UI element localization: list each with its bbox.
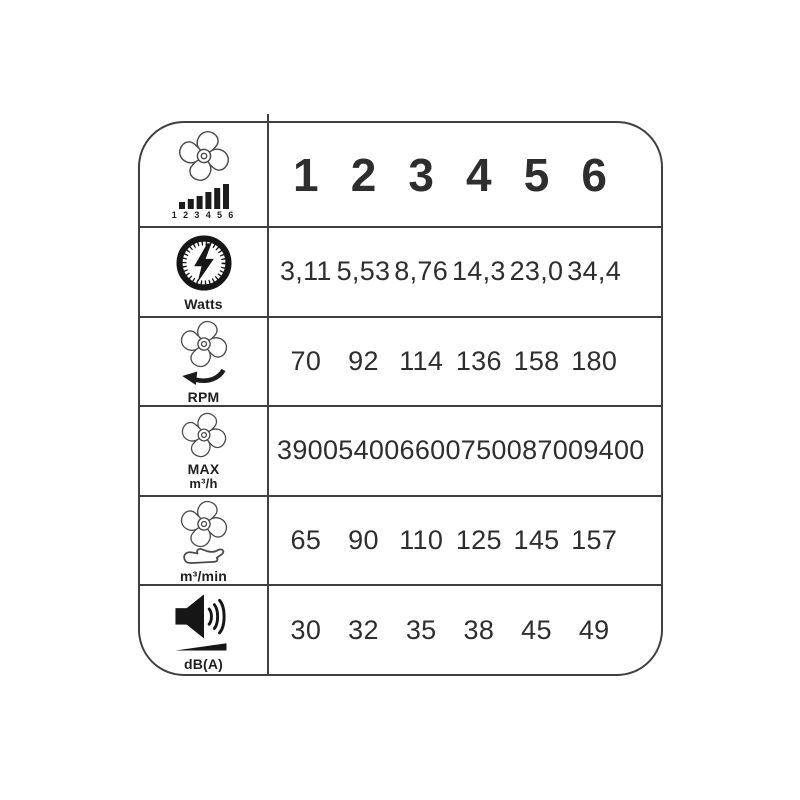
value-cell: 38 — [464, 615, 495, 646]
value-cell: 145 — [514, 525, 560, 556]
value-cell: 23,0 — [510, 256, 564, 287]
value-cell: 30 — [291, 615, 322, 646]
value-cell: 180 — [571, 346, 617, 377]
dba-values: 30 32 35 38 45 49 — [267, 586, 661, 674]
value-cell: 32 — [348, 615, 379, 646]
table-header-row: 1 2 3 4 5 6 1 2 3 4 5 6 — [140, 123, 661, 226]
rpm-icon-cell: RPM — [140, 318, 267, 406]
speed-column-header: 3 — [408, 148, 434, 202]
m3min-icon-cell: m³/min — [140, 497, 267, 585]
rpm-label: RPM — [188, 390, 220, 404]
speed-column-header: 2 — [351, 148, 377, 202]
value-cell: 8,76 — [394, 256, 448, 287]
value-cell: 9400 — [583, 435, 644, 466]
speed-column-header: 6 — [581, 148, 607, 202]
value-cell: 8700 — [522, 435, 583, 466]
speed-column-header: 5 — [524, 148, 550, 202]
value-cell: 158 — [514, 346, 560, 377]
watts-label: Watts — [184, 297, 223, 311]
spec-table: 1 2 3 4 5 6 1 2 3 4 5 6 Watts — [138, 121, 663, 676]
value-cell: 125 — [456, 525, 502, 556]
dba-icon-cell: dB(A) — [140, 586, 267, 674]
rotation-arrow-icon — [180, 365, 228, 387]
row-max-m3h: MAX m³/h 3900 5400 6600 7500 8700 9400 — [140, 405, 661, 495]
value-cell: 157 — [571, 525, 617, 556]
hand-icon — [181, 545, 227, 566]
value-cell: 14,3 — [452, 256, 506, 287]
value-cell: 34,4 — [567, 256, 621, 287]
value-cell: 45 — [521, 615, 552, 646]
column-divider — [267, 114, 269, 674]
row-watts: Watts 3,11 5,53 8,76 14,3 23,0 34,4 — [140, 226, 661, 316]
row-rpm: RPM 70 92 114 136 158 180 — [140, 316, 661, 406]
fan-specification-sheet: 1 2 3 4 5 6 1 2 3 4 5 6 Watts — [0, 0, 800, 800]
value-cell: 7500 — [461, 435, 522, 466]
m3min-values: 65 90 110 125 145 157 — [267, 497, 661, 585]
m3min-label: m³/min — [180, 569, 227, 583]
row-m3min: m³/min 65 90 110 125 145 157 — [140, 495, 661, 585]
max-label: MAX — [188, 462, 220, 476]
max-m3h-values: 3900 5400 6600 7500 8700 9400 — [267, 407, 683, 495]
power-gauge-lightning-icon — [173, 232, 235, 294]
speed-column-header: 4 — [466, 148, 492, 202]
value-cell: 3,11 — [280, 256, 332, 287]
value-cell: 49 — [579, 615, 610, 646]
value-cell: 90 — [348, 525, 379, 556]
value-cell: 114 — [399, 346, 443, 377]
value-cell: 3900 — [277, 435, 338, 466]
dba-label: dB(A) — [184, 657, 223, 671]
header-columns: 1 2 3 4 5 6 — [267, 123, 661, 226]
value-cell: 35 — [406, 615, 437, 646]
speed-scale-digits: 1 2 3 4 5 6 — [172, 211, 235, 220]
speed-column-header: 1 — [293, 148, 319, 202]
watts-icon-cell: Watts — [140, 228, 267, 316]
value-cell: 6600 — [400, 435, 461, 466]
row-dba: dB(A) 30 32 35 38 45 49 — [140, 584, 661, 674]
max-m3h-icon-cell: MAX m³/h — [140, 407, 267, 495]
speed-bars-icon — [179, 183, 229, 209]
value-cell: 136 — [456, 346, 502, 377]
value-cell: 92 — [348, 346, 379, 377]
value-cell: 5,53 — [337, 256, 391, 287]
value-cell: 5400 — [338, 435, 399, 466]
header-icon-cell: 1 2 3 4 5 6 — [140, 123, 267, 226]
fan-icon — [177, 411, 231, 459]
fan-icon — [176, 499, 232, 549]
fan-icon — [176, 319, 232, 369]
value-cell: 70 — [291, 346, 322, 377]
speaker-volume-icon — [172, 590, 236, 654]
value-cell: 110 — [399, 525, 443, 556]
rpm-values: 70 92 114 136 158 180 — [267, 318, 661, 406]
value-cell: 65 — [291, 525, 322, 556]
fan-icon — [174, 129, 234, 183]
m3h-label: m³/h — [189, 477, 217, 490]
watts-values: 3,11 5,53 8,76 14,3 23,0 34,4 — [267, 228, 661, 316]
